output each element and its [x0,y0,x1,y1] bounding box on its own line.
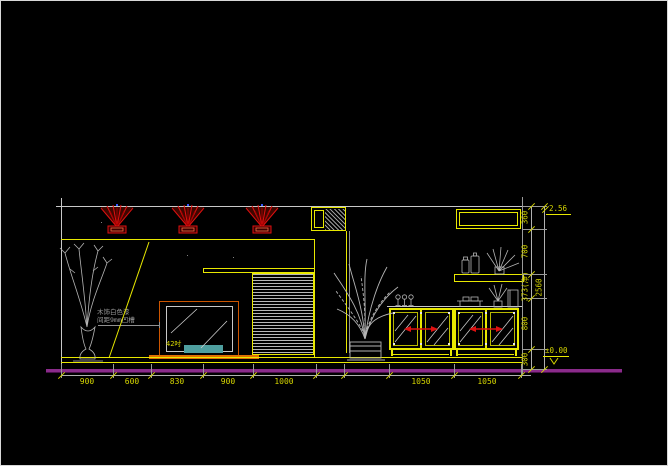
downlight-icon [172,204,204,233]
downlight-icon [246,204,278,233]
cad-elevation-canvas: 42吋 木饰白色漆 间距9mm凹槽 900 600 830 900 [0,0,668,466]
symbol-overlay [1,1,668,466]
palm-plant-icon [334,259,398,360]
cabinet-glass-marks [395,315,513,345]
niche-glass-marks [171,309,227,348]
glassware-icons [396,295,414,306]
downlight-icon [101,204,133,233]
level-triangle-icon [550,358,558,364]
vase-plant-icon [60,243,112,361]
wall-feature-diagonal [109,242,149,358]
shelf-jars-icon [462,253,479,273]
tray-stand-icon [457,297,483,307]
shelf-plant-icon [487,247,519,274]
cabinet-top-plant-icon [489,284,518,307]
red-door-swing-arrow-icon [404,326,503,332]
